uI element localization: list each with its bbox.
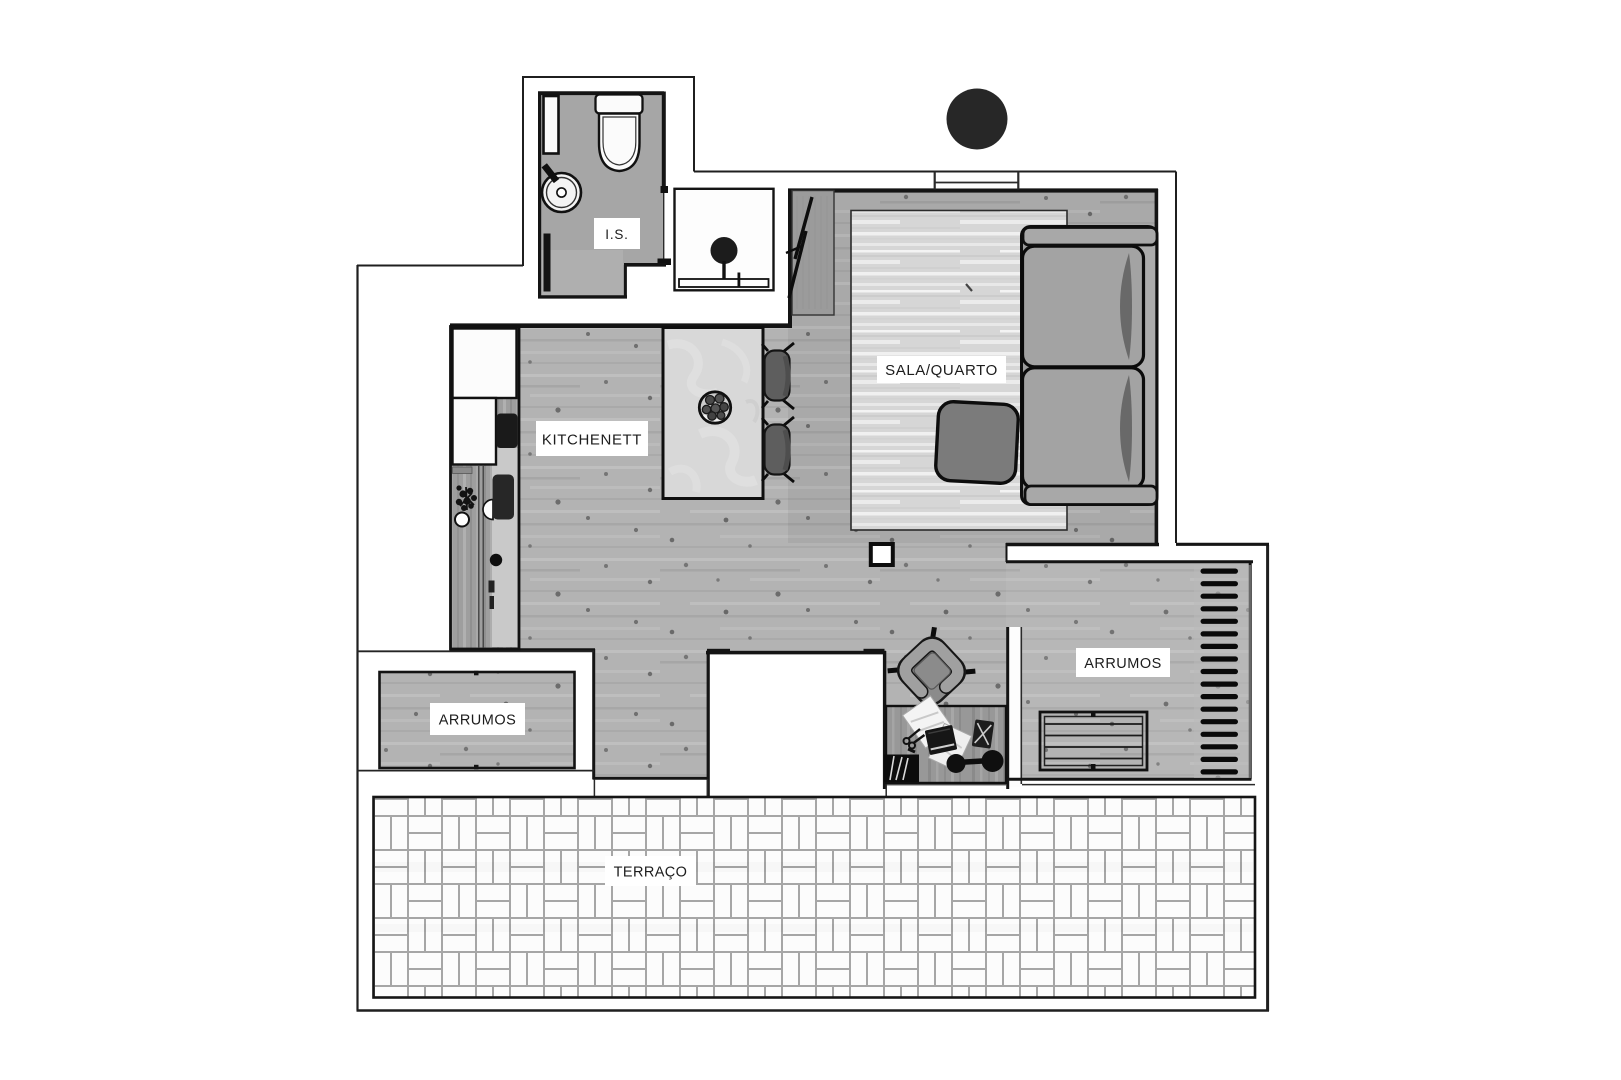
svg-text:ARRUMOS: ARRUMOS (1084, 656, 1162, 672)
svg-text:ARRUMOS: ARRUMOS (439, 713, 517, 729)
svg-text:SALA/QUARTO: SALA/QUARTO (885, 362, 998, 379)
svg-text:KITCHENETT: KITCHENETT (542, 432, 642, 449)
svg-text:TERRAÇO: TERRAÇO (614, 865, 688, 881)
svg-text:I.S.: I.S. (605, 227, 628, 242)
